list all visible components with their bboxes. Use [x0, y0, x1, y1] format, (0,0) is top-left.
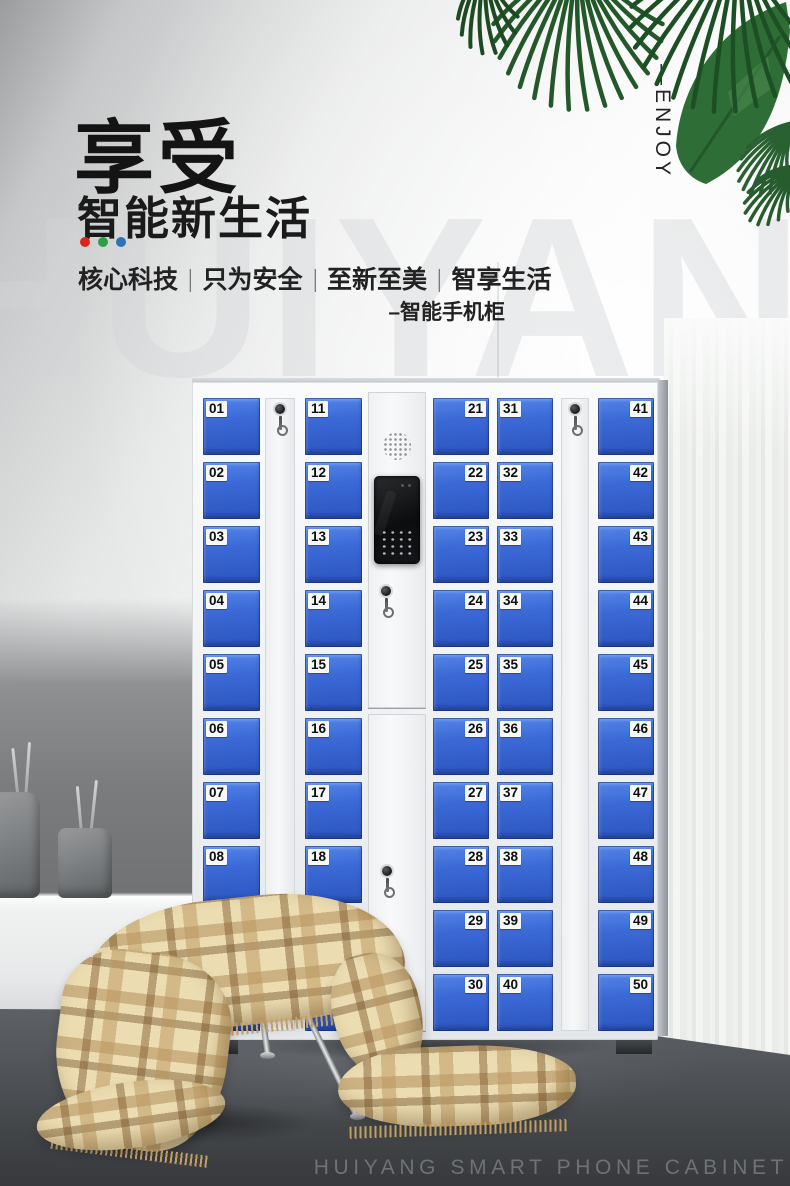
locker-door-05: 05 [203, 654, 260, 711]
door-number: 32 [500, 465, 521, 481]
locker-door-11: 11 [305, 398, 362, 455]
locker-door-14: 14 [305, 590, 362, 647]
locker-door-22: 22 [433, 462, 489, 519]
door-number: 18 [308, 849, 329, 865]
locker-door-29: 29 [433, 910, 489, 967]
door-number: 30 [465, 977, 486, 993]
locker-door-32: 32 [497, 462, 553, 519]
locker-door-44: 44 [598, 590, 654, 647]
locker-door-42: 42 [598, 462, 654, 519]
door-number: 48 [630, 849, 651, 865]
door-number: 36 [500, 721, 521, 737]
cabinet-foot [616, 1040, 652, 1054]
key-icon [385, 598, 388, 612]
accent-dot-green [98, 237, 108, 247]
locker-door-28: 28 [433, 846, 489, 903]
locker-door-04: 04 [203, 590, 260, 647]
keyhole-icon [570, 404, 580, 414]
door-number: 15 [308, 657, 329, 673]
locker-door-08: 08 [203, 846, 260, 903]
locker-door-46: 46 [598, 718, 654, 775]
master-lock-column-right [561, 378, 589, 1038]
door-number: 40 [500, 977, 521, 993]
door-number: 26 [465, 721, 486, 737]
camera-icon [408, 484, 411, 487]
locker-door-21: 21 [433, 398, 489, 455]
door-number: 49 [630, 913, 651, 929]
door-number: 43 [630, 529, 651, 545]
speaker-grille-icon [383, 432, 411, 460]
locker-door-17: 17 [305, 782, 362, 839]
door-number: 27 [465, 785, 486, 801]
locker-door-48: 48 [598, 846, 654, 903]
key-icon [279, 416, 282, 430]
tagline-divider: | [188, 265, 192, 294]
locker-door-01: 01 [203, 398, 260, 455]
door-number: 06 [206, 721, 227, 737]
door-number: 41 [630, 401, 651, 417]
locker-door-37: 37 [497, 782, 553, 839]
door-number: 07 [206, 785, 227, 801]
door-column-3: 21222324252627282930 [433, 378, 489, 1038]
door-number: 33 [500, 529, 521, 545]
door-number: 44 [630, 593, 651, 609]
door-column-5: 41424344454647484950 [598, 378, 654, 1038]
door-number: 05 [206, 657, 227, 673]
decor-vase [0, 792, 40, 898]
locker-door-26: 26 [433, 718, 489, 775]
locker-door-35: 35 [497, 654, 553, 711]
locker-door-03: 03 [203, 526, 260, 583]
key-icon [386, 878, 389, 892]
accent-dot-blue [116, 237, 126, 247]
palm-leaves [428, 0, 790, 240]
locker-door-31: 31 [497, 398, 553, 455]
locker-door-41: 41 [598, 398, 654, 455]
door-number: 47 [630, 785, 651, 801]
locker-door-23: 23 [433, 526, 489, 583]
door-number: 08 [206, 849, 227, 865]
door-number: 37 [500, 785, 521, 801]
door-number: 17 [308, 785, 329, 801]
locker-door-39: 39 [497, 910, 553, 967]
door-number: 23 [465, 529, 486, 545]
key-icon [574, 416, 577, 430]
door-number: 12 [308, 465, 329, 481]
indicator-light [401, 484, 404, 487]
door-number: 35 [500, 657, 521, 673]
door-number: 01 [206, 401, 227, 417]
keypad-icon [380, 529, 414, 557]
door-number: 29 [465, 913, 486, 929]
tagline-divider: | [313, 265, 317, 294]
locker-door-07: 07 [203, 782, 260, 839]
locker-door-25: 25 [433, 654, 489, 711]
locker-door-43: 43 [598, 526, 654, 583]
door-number: 42 [630, 465, 651, 481]
locker-door-06: 06 [203, 718, 260, 775]
footer-caption: HUIYANG SMART PHONE CABINET [314, 1156, 788, 1180]
keyhole-icon [382, 866, 392, 876]
door-number: 39 [500, 913, 521, 929]
locker-door-13: 13 [305, 526, 362, 583]
control-panel-door [368, 392, 426, 708]
door-number: 25 [465, 657, 486, 673]
locker-door-15: 15 [305, 654, 362, 711]
door-number: 02 [206, 465, 227, 481]
locker-door-38: 38 [497, 846, 553, 903]
locker-door-02: 02 [203, 462, 260, 519]
locker-door-16: 16 [305, 718, 362, 775]
locker-door-36: 36 [497, 718, 553, 775]
door-number: 24 [465, 593, 486, 609]
door-number: 11 [308, 401, 328, 417]
door-number: 14 [308, 593, 329, 609]
locker-door-45: 45 [598, 654, 654, 711]
door-number: 38 [500, 849, 521, 865]
stool-leg-foot [260, 1052, 275, 1059]
door-number: 03 [206, 529, 227, 545]
accent-dots [80, 237, 126, 247]
locker-door-18: 18 [305, 846, 362, 903]
locker-door-33: 33 [497, 526, 553, 583]
keyhole-icon [275, 404, 285, 414]
door-number: 50 [630, 977, 651, 993]
tagline-part: 智享生活 [452, 266, 552, 294]
locker-door-50: 50 [598, 974, 654, 1031]
tagline-part: 核心科技 [78, 266, 178, 294]
door-number: 22 [465, 465, 486, 481]
door-number: 46 [630, 721, 651, 737]
door-number: 28 [465, 849, 486, 865]
locker-door-47: 47 [598, 782, 654, 839]
tagline-divider: | [438, 265, 442, 294]
door-column-4: 31323334353637383940 [497, 378, 553, 1038]
locker-door-27: 27 [433, 782, 489, 839]
product-note: –智能手机柜 [305, 296, 505, 326]
locker-door-34: 34 [497, 590, 553, 647]
sheer-curtain [664, 318, 790, 1088]
door-number: 13 [308, 529, 329, 545]
poster-scene: HUIYANG 01020304050607080910 11121314151… [0, 0, 790, 1186]
door-number: 21 [465, 401, 486, 417]
lock-column-door [561, 398, 589, 1031]
locker-door-30: 30 [433, 974, 489, 1031]
door-number: 34 [500, 593, 521, 609]
locker-door-12: 12 [305, 462, 362, 519]
cabinet-side [658, 380, 668, 1036]
door-number: 45 [630, 657, 651, 673]
locker-door-24: 24 [433, 590, 489, 647]
decor-vase [58, 828, 112, 898]
tagline: 核心科技|只为安全|至新至美|智享生活 [78, 260, 552, 296]
locker-door-40: 40 [497, 974, 553, 1031]
tagline-part: 至新至美 [327, 266, 427, 294]
tagline-part: 只为安全 [203, 266, 303, 294]
locker-door-49: 49 [598, 910, 654, 967]
door-number: 04 [206, 593, 227, 609]
accent-dot-red [80, 237, 90, 247]
door-number: 31 [500, 401, 521, 417]
door-number: 16 [308, 721, 329, 737]
control-screen-panel [374, 476, 420, 564]
keyhole-icon [381, 586, 391, 596]
